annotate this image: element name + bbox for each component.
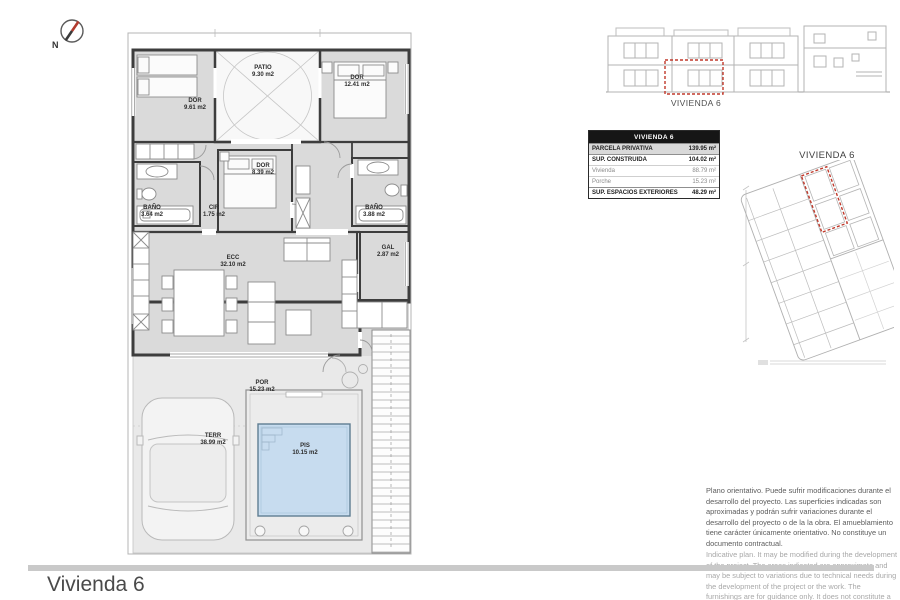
site-plan-drawing (736, 160, 894, 386)
disclaimer-en: Indicative plan. It may be modified duri… (706, 550, 898, 600)
pool (246, 390, 362, 540)
car (137, 398, 239, 540)
disclaimer: Plano orientativo. Puede sufrir modifica… (706, 486, 898, 600)
table-row: SUP. ESPACIOS EXTERIORES48.29 m² (589, 187, 719, 198)
plan-sheet: N (0, 0, 900, 600)
page-title: Vivienda 6 (47, 573, 145, 597)
dining-set (162, 270, 237, 336)
room-label-por: POR15.23 m2 (249, 380, 274, 394)
room-label-cir: CIR1.75 m2 (203, 205, 225, 219)
room-label-dor3: DOR8.39 m2 (252, 163, 274, 177)
sofa-side (342, 260, 357, 328)
room-label-terr: TERR38.99 m2 (200, 433, 225, 447)
bottom-divider-bar (28, 565, 874, 571)
north-arrow-icon (44, 8, 100, 60)
elevation-label: VIVIENDA 6 (651, 98, 741, 108)
patio-area (215, 50, 320, 142)
table-row: PARCELA PRIVATIVA139.95 m² (589, 143, 719, 154)
bed-dor3 (220, 152, 276, 208)
room-label-bano1: BAÑO3.64 m2 (141, 205, 163, 219)
area-table: VIVIENDA 6 PARCELA PRIVATIVA139.95 m² SU… (588, 130, 720, 199)
room-label-patio: PATIO9.30 m2 (252, 65, 274, 79)
room-label-pis: PIS10.15 m2 (292, 443, 317, 457)
room-label-dor2: DOR12.41 m2 (344, 75, 369, 89)
coffee-table (286, 310, 311, 335)
loveseat (284, 238, 330, 261)
room-label-ecc: ECC32.10 m2 (220, 255, 245, 269)
disclaimer-es: Plano orientativo. Puede sufrir modifica… (706, 486, 898, 549)
staircase (372, 330, 410, 553)
table-row: Vivienda88.79 m² (589, 165, 719, 176)
kitchen-counter (133, 232, 149, 330)
north-label: N (52, 40, 59, 50)
room-label-bano2: BAÑO3.88 m2 (363, 205, 385, 219)
elevation-drawing (606, 12, 890, 96)
area-table-header: VIVIENDA 6 (589, 131, 719, 143)
floor-plan-drawing (126, 28, 414, 562)
room-label-dor1: DOR9.61 m2 (184, 98, 206, 112)
table-row: SUP. CONSTRUIDA104.02 m² (589, 154, 719, 165)
table-row: Porche15.23 m² (589, 176, 719, 187)
sofa-main (248, 282, 275, 344)
room-label-gal: GAL2.87 m2 (377, 245, 399, 259)
